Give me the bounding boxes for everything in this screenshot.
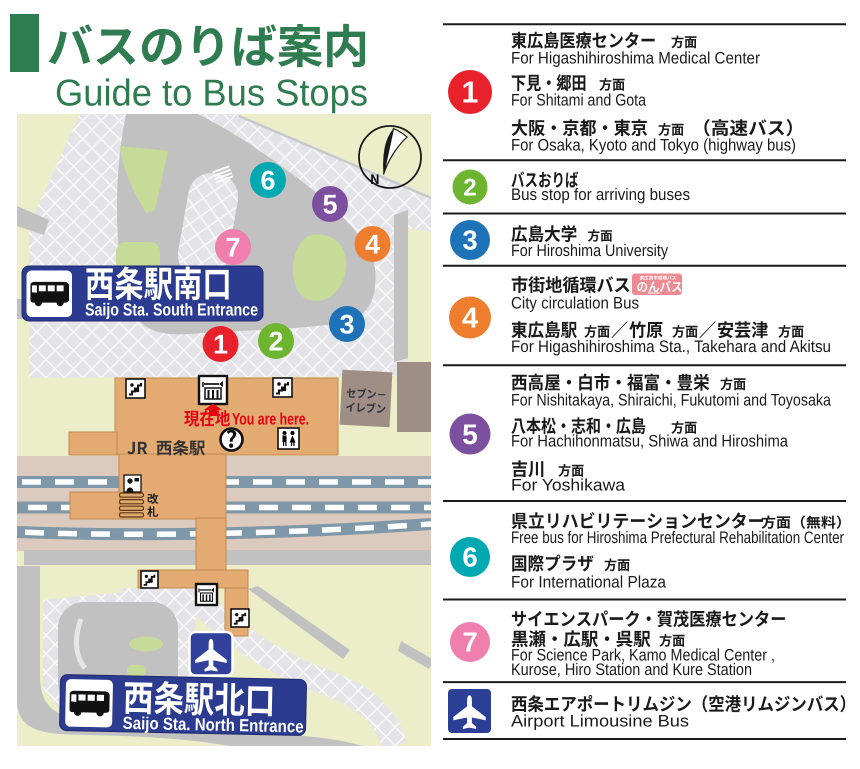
svg-text:7: 7: [225, 233, 240, 263]
svg-text:Bus stop for arriving buses: Bus stop for arriving buses: [511, 185, 690, 204]
svg-text:5: 5: [322, 190, 337, 220]
svg-text:Saijo Sta. North Entrance: Saijo Sta. North Entrance: [122, 713, 304, 737]
svg-text:Airport Limousine Bus: Airport Limousine Bus: [511, 712, 689, 731]
svg-text:For Shitami and Gota: For Shitami and Gota: [511, 91, 647, 110]
svg-text:4: 4: [365, 230, 380, 260]
svg-text:You are here.: You are here.: [232, 411, 309, 429]
svg-text:1: 1: [462, 77, 479, 110]
svg-text:3: 3: [462, 225, 477, 256]
svg-text:5: 5: [462, 418, 478, 450]
svg-text:For Osaka, Kyoto and Tokyo (hi: For Osaka, Kyoto and Tokyo (highway bus): [511, 136, 796, 155]
svg-text:For Hachihonmatsu, Shiwa and H: For Hachihonmatsu, Shiwa and Hiroshima: [511, 432, 789, 451]
svg-text:Kurose, Hiro Station and Kure: Kurose, Hiro Station and Kure Station: [511, 660, 752, 679]
svg-text:City circulation Bus: City circulation Bus: [511, 294, 639, 313]
svg-text:For International Plaza: For International Plaza: [511, 573, 667, 592]
svg-text:6: 6: [260, 166, 275, 196]
svg-text:7: 7: [462, 627, 477, 658]
svg-text:For Higashihiroshima Sta., Tak: For Higashihiroshima Sta., Takehara and …: [511, 337, 831, 356]
svg-text:For Nishitakaya, Shiraichi, Fu: For Nishitakaya, Shiraichi, Fukutomi and…: [511, 391, 832, 410]
svg-text:6: 6: [462, 542, 477, 573]
svg-text:For Higashihiroshima Medical C: For Higashihiroshima Medical Center: [511, 49, 760, 68]
svg-text:Guide to Bus Stops: Guide to Bus Stops: [55, 72, 368, 114]
svg-text:4: 4: [462, 303, 478, 335]
svg-text:For Yoshikawa: For Yoshikawa: [511, 476, 626, 495]
svg-text:1: 1: [213, 330, 228, 360]
svg-text:2: 2: [268, 327, 283, 357]
svg-text:Free bus for Hiroshima Prefect: Free bus for Hiroshima Prefectural Rehab…: [511, 528, 844, 547]
svg-text:Saijo Sta. South Entrance: Saijo Sta. South Entrance: [85, 300, 258, 320]
svg-text:2: 2: [463, 174, 476, 201]
svg-text:3: 3: [339, 310, 354, 340]
svg-text:For Hiroshima University: For Hiroshima University: [511, 241, 669, 260]
